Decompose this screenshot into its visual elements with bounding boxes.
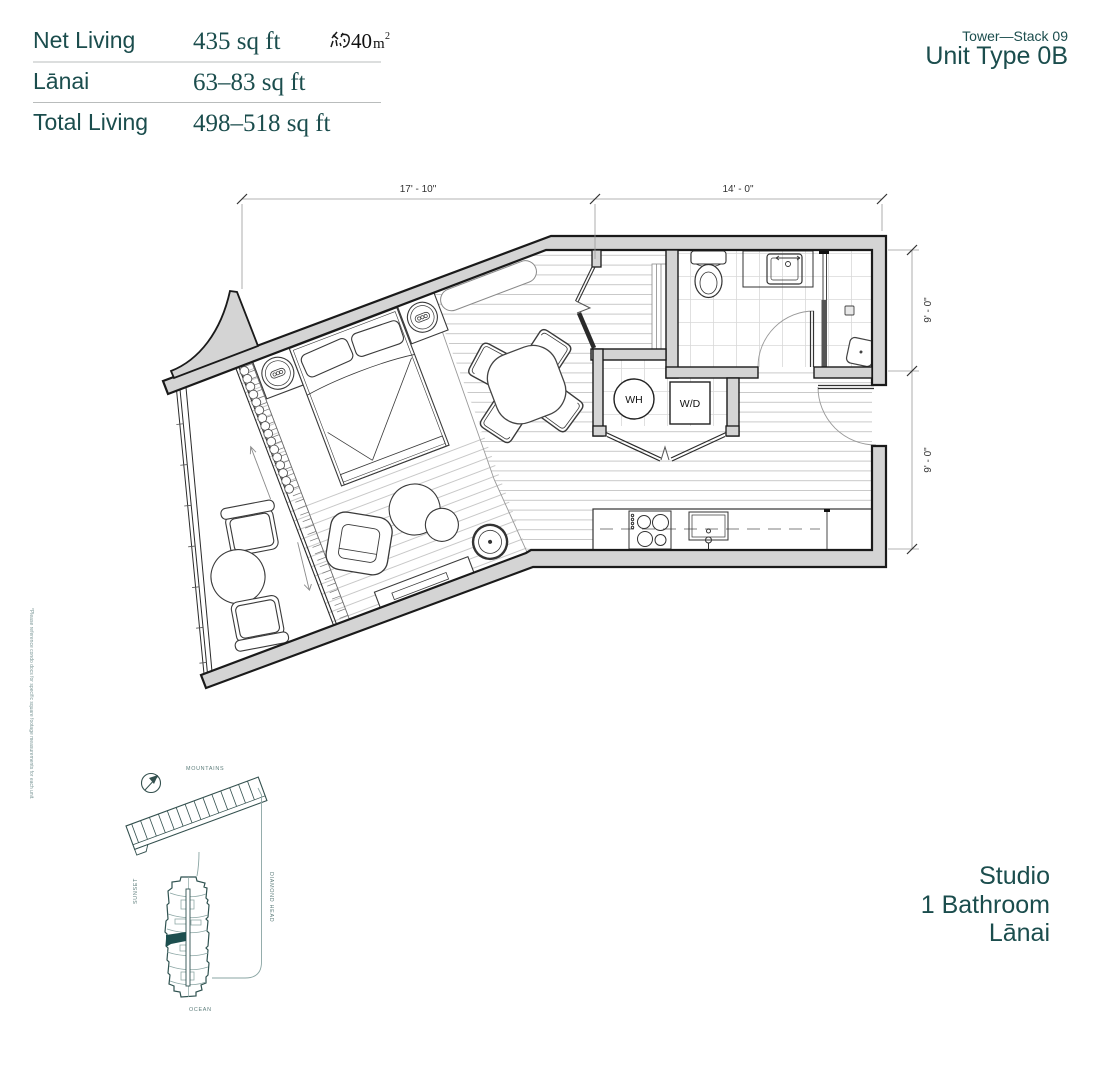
svg-text:63–83 sq ft: 63–83 sq ft — [193, 69, 306, 96]
svg-text:40: 40 — [351, 29, 372, 53]
svg-text:SUNSET: SUNSET — [133, 878, 139, 904]
svg-text:Lānai: Lānai — [33, 68, 89, 94]
svg-text:Studio: Studio — [979, 862, 1050, 890]
svg-text:Unit Type 0B: Unit Type 0B — [925, 42, 1068, 70]
svg-text:W/D: W/D — [680, 398, 701, 410]
svg-text:OCEAN: OCEAN — [189, 1007, 212, 1013]
svg-text:1 Bathroom: 1 Bathroom — [921, 891, 1050, 919]
svg-text:17' - 10": 17' - 10" — [400, 184, 437, 195]
svg-text:Net Living: Net Living — [33, 27, 135, 53]
svg-text:*Please reference condo docs f: *Please reference condo docs for specifi… — [28, 608, 34, 800]
svg-text:WH: WH — [625, 394, 643, 406]
svg-text:DIAMOND HEAD: DIAMOND HEAD — [268, 872, 274, 922]
svg-text:MOUNTAINS: MOUNTAINS — [186, 766, 224, 772]
svg-text:435 sq ft: 435 sq ft — [193, 28, 281, 55]
svg-text:Total Living: Total Living — [33, 109, 148, 135]
svg-text:Lānai: Lānai — [989, 919, 1050, 947]
svg-text:9' - 0": 9' - 0" — [923, 297, 934, 323]
svg-text:498–518 sq ft: 498–518 sq ft — [193, 110, 331, 137]
svg-text:m: m — [373, 36, 385, 52]
svg-text:2: 2 — [385, 31, 390, 42]
svg-text:9' - 0": 9' - 0" — [923, 447, 934, 473]
svg-text:14' - 0": 14' - 0" — [722, 184, 753, 195]
